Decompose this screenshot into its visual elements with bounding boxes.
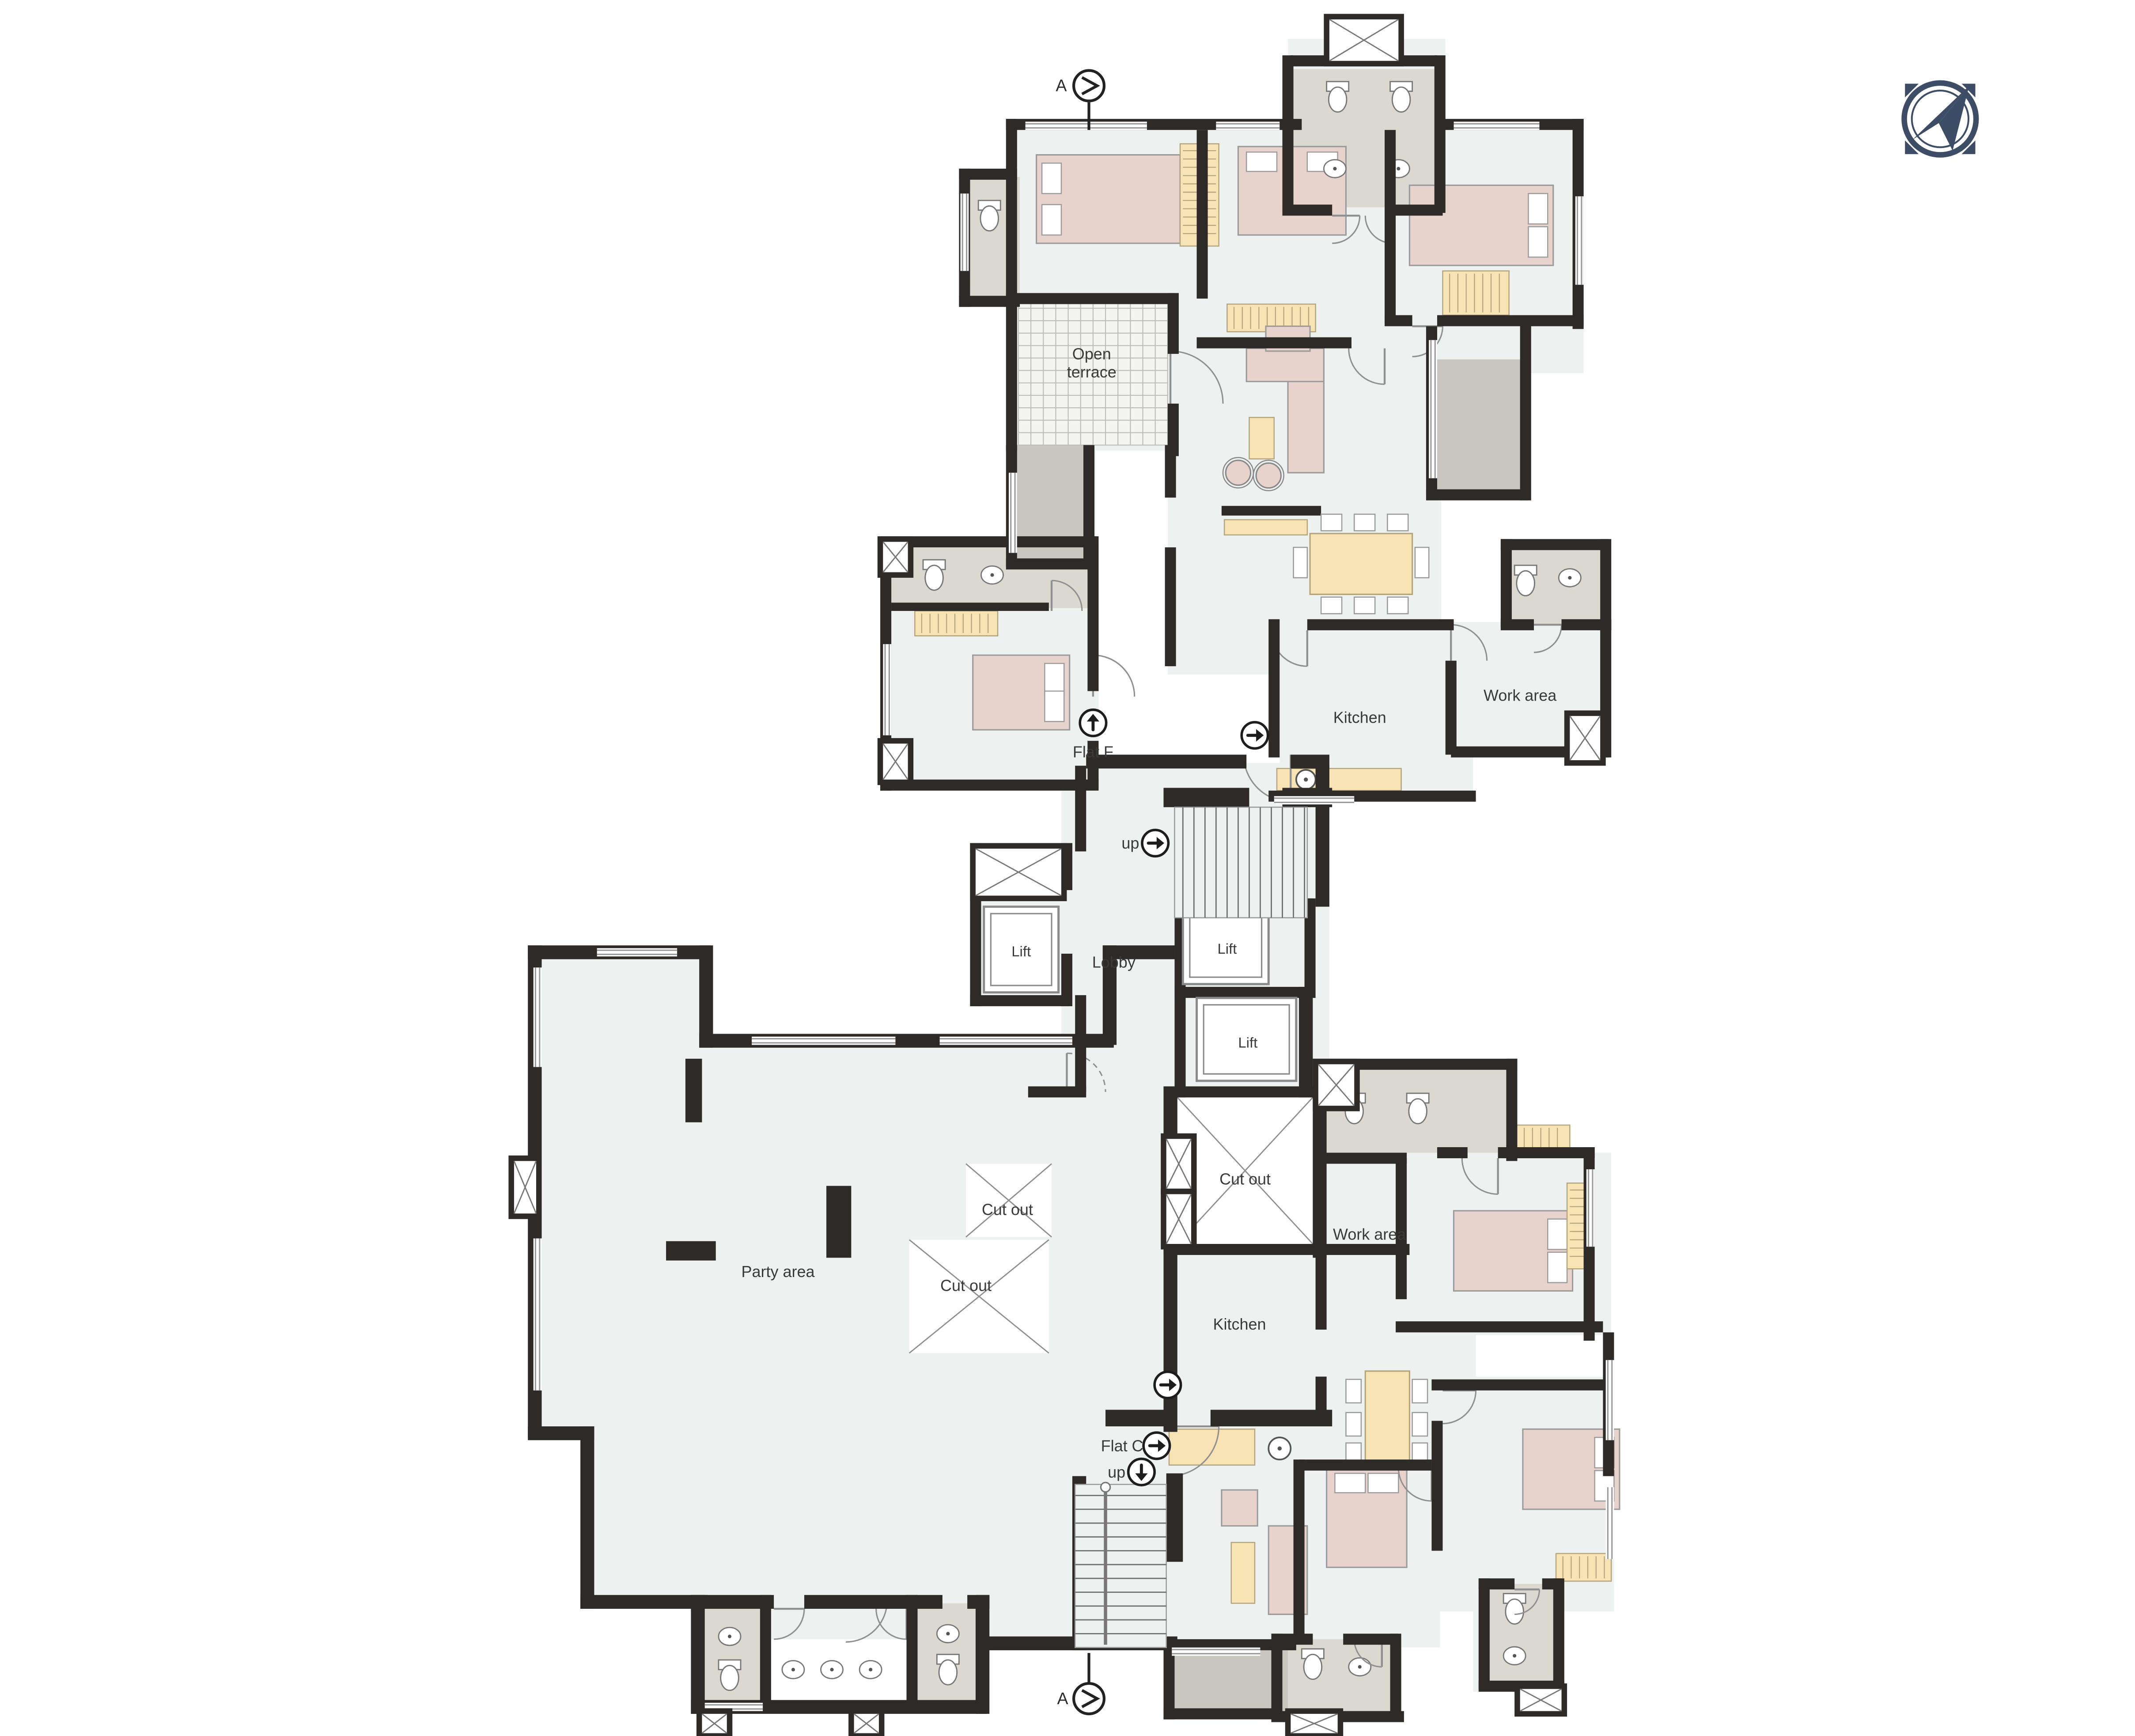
window [534, 1239, 542, 1391]
pillow [1045, 663, 1064, 694]
wall [1313, 1086, 1326, 1258]
toilet-bowl [1329, 87, 1347, 112]
wall [1385, 315, 1412, 326]
wall [1105, 1410, 1172, 1426]
label-open-terrace-2: terrace [1067, 363, 1117, 381]
wall [580, 1426, 594, 1609]
compass-needle [1939, 86, 1969, 151]
stair-rail-post [1101, 1482, 1110, 1492]
toilet-bowl [1506, 1599, 1524, 1624]
dining-table [1310, 534, 1412, 595]
wall [1165, 445, 1176, 498]
wall [1163, 788, 1249, 807]
wall [1006, 293, 1175, 304]
window [961, 193, 969, 271]
upper-entry-arrow-icon [1242, 722, 1268, 748]
dining-chair [1321, 597, 1342, 614]
basin-drain [1397, 167, 1400, 171]
wall [1294, 1459, 1305, 1639]
dining-chair [1415, 547, 1429, 578]
basin-drain [946, 1632, 950, 1635]
wall [1393, 205, 1443, 216]
wall [1268, 619, 1279, 758]
floor-plan-canvas: A A Open terrace Flat [0, 0, 2135, 1736]
label-lift-bottom: Lift [1238, 1035, 1257, 1051]
window [1429, 340, 1437, 478]
label-lift-left: Lift [1011, 943, 1031, 959]
label-work-area-upper: Work area [1484, 686, 1556, 704]
wall [760, 1595, 771, 1709]
wall [1283, 55, 1294, 213]
flat-f-direction-icon [1080, 710, 1106, 736]
wardrobe [1509, 1125, 1570, 1150]
label-cutout-center: Cut out [1219, 1170, 1271, 1188]
wall [1087, 536, 1098, 691]
wall [1061, 954, 1072, 1006]
pillow [1368, 1473, 1399, 1493]
label-up-lower: up [1108, 1463, 1125, 1481]
basin-drain [1358, 1665, 1362, 1668]
wall [826, 1186, 851, 1258]
north-compass-icon [1904, 83, 1976, 155]
basin-drain [830, 1668, 833, 1672]
wardrobe [1556, 1554, 1611, 1581]
basin-drain [791, 1668, 795, 1672]
pillow [1045, 691, 1064, 722]
label-flat-c: Flat C [1101, 1437, 1143, 1455]
wall [1165, 547, 1176, 666]
bathroom-floor [1277, 1639, 1390, 1714]
dining-chair [1346, 1413, 1361, 1436]
wall [580, 1595, 708, 1609]
wardrobe [1231, 1543, 1255, 1603]
wall [666, 1241, 716, 1261]
dining-chair [1346, 1380, 1361, 1403]
wall [1166, 1473, 1183, 1562]
dining-chair [1412, 1380, 1427, 1403]
wall [1307, 619, 1454, 630]
chevron-right-icon [1082, 77, 1097, 94]
basin-drain [1513, 1654, 1516, 1657]
window [1575, 196, 1584, 284]
wall [1075, 766, 1086, 851]
label-up-upper: up [1121, 834, 1139, 852]
dining-chair [1321, 514, 1342, 531]
window [1586, 1169, 1595, 1247]
toilet-bowl [1517, 571, 1535, 595]
wall [1498, 1147, 1595, 1158]
wall [1168, 293, 1179, 354]
window [1606, 1487, 1614, 1559]
wardrobe [1249, 417, 1274, 459]
wall [1163, 1708, 1277, 1719]
basin-drain [1568, 576, 1571, 580]
pillow [1042, 163, 1061, 193]
wall [1426, 489, 1529, 500]
wall [1520, 326, 1531, 500]
lower-entry-arrow-icon [1155, 1372, 1181, 1398]
window [1172, 1648, 1260, 1656]
wall [1299, 1459, 1431, 1471]
label-kitchen-upper: Kitchen [1333, 708, 1386, 726]
wall [1542, 1578, 1562, 1589]
toilet-bowl [1392, 87, 1410, 112]
label-work-area-lower: Work area [1333, 1225, 1406, 1243]
label-cutout-upper: Cut out [982, 1200, 1033, 1218]
label-lobby: Lobby [1092, 953, 1136, 971]
wall [1506, 1059, 1517, 1161]
wall [1501, 539, 1512, 627]
wall [1390, 1634, 1401, 1717]
wall [699, 945, 713, 1048]
sofa [1288, 376, 1324, 473]
label-flat-f: Flat F [1073, 743, 1113, 761]
section-label-top: A [1056, 76, 1067, 95]
pillow [1528, 193, 1548, 224]
wall [1431, 1380, 1608, 1391]
wall [1431, 1421, 1442, 1551]
round-chair [1256, 463, 1281, 488]
toilet-bowl [980, 206, 999, 231]
door-swing-arc [1093, 655, 1135, 697]
label-kitchen-lower: Kitchen [1213, 1315, 1266, 1333]
label-cutout-lower: Cut out [940, 1276, 992, 1294]
wall [1385, 130, 1396, 323]
dining-chair [1354, 514, 1375, 531]
bathroom-floor [912, 1603, 978, 1703]
up-arrow-icon-upper [1142, 830, 1168, 856]
wall [1174, 1086, 1318, 1097]
wall [1446, 661, 1457, 755]
dining-table [1365, 1371, 1409, 1468]
wall [685, 1059, 702, 1122]
basin-drain [1333, 167, 1336, 171]
toilet-bowl [925, 565, 943, 590]
round-chair [1226, 460, 1250, 485]
wall [906, 1595, 917, 1709]
basin-drain [728, 1635, 731, 1638]
dining-chair [1354, 597, 1375, 614]
terrace-floor [1435, 360, 1526, 495]
pillow [1335, 1473, 1365, 1493]
window [883, 644, 891, 735]
wall [1396, 1321, 1603, 1332]
window [534, 967, 542, 1067]
pillow [1548, 1252, 1567, 1283]
wall [1501, 619, 1534, 630]
wall [1028, 1086, 1086, 1097]
section-marker-a-bottom: A [1057, 1653, 1104, 1714]
sofa [1222, 1490, 1257, 1526]
wall [1283, 205, 1332, 216]
label-lift-top: Lift [1217, 940, 1237, 957]
dining-chair [1412, 1413, 1427, 1436]
wall [1321, 1153, 1407, 1164]
chevron-right-icon [1082, 1691, 1097, 1707]
wall [1006, 119, 1017, 299]
down-arrow-icon-lower [1128, 1459, 1155, 1485]
wall [970, 995, 1069, 1006]
basin-drain [990, 573, 994, 577]
flat-c-direction-icon [1143, 1433, 1170, 1459]
wall [1197, 337, 1351, 349]
toilet-bowl [1409, 1099, 1427, 1124]
dining-chair [1387, 597, 1408, 614]
pillow [1246, 152, 1277, 171]
wall [1197, 130, 1208, 299]
wall [891, 603, 1049, 611]
wall [1211, 1410, 1332, 1426]
wardrobe [915, 611, 998, 636]
wall [1479, 1578, 1490, 1689]
wall [1437, 315, 1584, 326]
wall [1600, 539, 1611, 630]
wall [984, 1637, 1083, 1650]
label-party-area: Party area [742, 1262, 815, 1281]
wall [1316, 1252, 1327, 1330]
wardrobe [1169, 1429, 1255, 1465]
floor-plan-page: A A Open terrace Flat [0, 0, 2135, 1736]
toilet-bowl [721, 1665, 739, 1690]
window [1274, 796, 1354, 804]
sink-drain [1304, 777, 1308, 781]
section-label-bottom: A [1057, 1689, 1068, 1708]
wall [1316, 766, 1329, 906]
wall [1163, 1244, 1409, 1255]
toilet-bowl [1304, 1654, 1322, 1679]
wall [691, 1595, 704, 1714]
label-open-terrace-1: Open [1072, 345, 1111, 363]
wall [1174, 987, 1313, 998]
window [1606, 1360, 1614, 1440]
tv-wall [1222, 506, 1321, 515]
wardrobe [1224, 520, 1307, 535]
wall [1435, 55, 1446, 213]
window [752, 1037, 895, 1045]
window [597, 948, 677, 956]
dining-chair [1387, 514, 1408, 531]
wall [976, 1595, 989, 1714]
sofa [1246, 349, 1324, 382]
pillow [1528, 227, 1548, 257]
pillow [1042, 205, 1061, 235]
wall [1006, 558, 1092, 569]
window [940, 1037, 1072, 1045]
wall [1299, 987, 1313, 1097]
wall [1006, 296, 1017, 451]
wall [1479, 1578, 1514, 1589]
toilet-bowl [939, 1660, 957, 1685]
wall [1437, 1147, 1468, 1158]
wall [804, 1595, 943, 1609]
window [1216, 121, 1279, 130]
window [1009, 473, 1017, 553]
wall [1553, 1578, 1564, 1689]
window [1454, 121, 1540, 130]
wall [1501, 539, 1609, 550]
basin-drain [869, 1668, 872, 1672]
window [1026, 121, 1147, 130]
dining-chair [1294, 547, 1307, 578]
pillow [1548, 1219, 1567, 1250]
sink-drain [1278, 1446, 1282, 1450]
